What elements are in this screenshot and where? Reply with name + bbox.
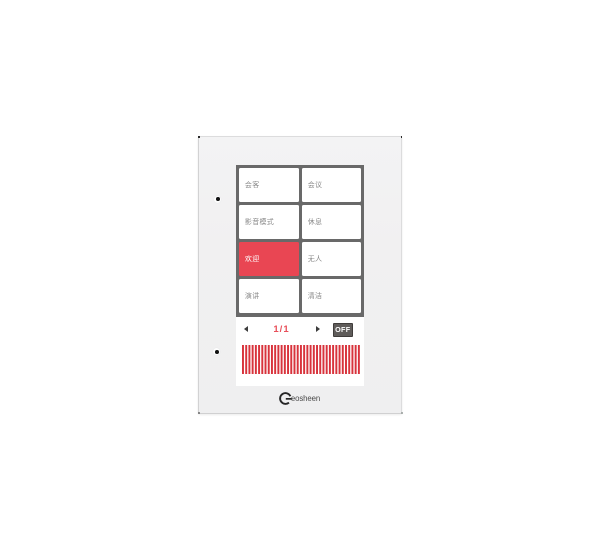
svg-text:eosheen: eosheen: [291, 394, 320, 403]
